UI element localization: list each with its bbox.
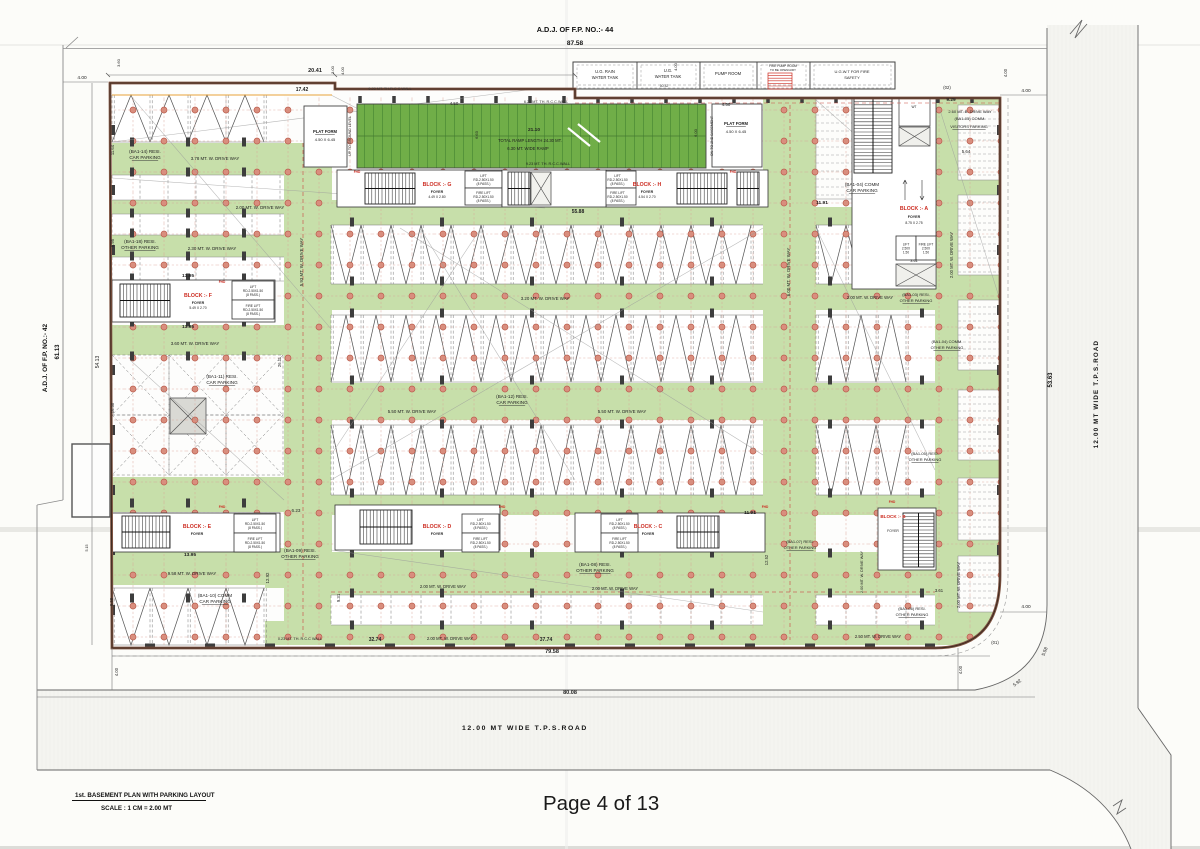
svg-text:(02): (02) xyxy=(943,85,951,90)
svg-text:(8 PASS.): (8 PASS.) xyxy=(246,293,260,297)
svg-text:FHD: FHD xyxy=(219,505,226,509)
svg-text:13.95: 13.95 xyxy=(182,324,194,330)
svg-text:OTHER PARKING: OTHER PARKING xyxy=(281,554,319,559)
svg-text:80.08: 80.08 xyxy=(563,690,577,696)
svg-text:UP TO GROUND LEVEL: UP TO GROUND LEVEL xyxy=(348,116,352,156)
svg-text:FHD: FHD xyxy=(219,280,226,284)
svg-text:(8 PASS.): (8 PASS.) xyxy=(611,199,625,203)
svg-text:FOYER: FOYER xyxy=(642,532,655,536)
svg-text:61.13: 61.13 xyxy=(55,344,61,360)
svg-text:4.00: 4.00 xyxy=(958,665,963,674)
svg-text:FHD: FHD xyxy=(499,505,506,509)
svg-text:BLOCK :- F: BLOCK :- F xyxy=(184,293,212,299)
svg-text:BLOCK :- D: BLOCK :- D xyxy=(423,524,452,530)
svg-text:(BA1-07) RESI.: (BA1-07) RESI. xyxy=(786,539,814,544)
svg-text:CAR PARKING: CAR PARKING xyxy=(129,155,161,160)
svg-text:6.00 MT. W. DRIVE WAY: 6.00 MT. W. DRIVE WAY xyxy=(786,248,791,297)
svg-text:3.61: 3.61 xyxy=(910,259,917,263)
svg-text:(BA1-11) RESI.: (BA1-11) RESI. xyxy=(206,374,237,379)
svg-text:11.91: 11.91 xyxy=(744,510,756,516)
svg-text:4.00: 4.00 xyxy=(114,667,119,676)
svg-text:(BA1-04) COMM: (BA1-04) COMM xyxy=(845,182,879,187)
svg-text:FHD: FHD xyxy=(762,505,769,509)
svg-text:TOTAL RAMP LENGTH 24.30 MT.: TOTAL RAMP LENGTH 24.30 MT. xyxy=(498,138,562,143)
svg-text:2.00 MT. W. DRIVE WAY: 2.00 MT. W. DRIVE WAY xyxy=(427,636,474,641)
svg-text:20.41: 20.41 xyxy=(308,68,322,74)
svg-text:FOYER: FOYER xyxy=(908,215,921,219)
svg-text:U.G. RAIN: U.G. RAIN xyxy=(595,69,615,74)
svg-text:(8 PASS.): (8 PASS.) xyxy=(246,312,260,316)
svg-text:ON TO 2ND BASEMENT: ON TO 2ND BASEMENT xyxy=(710,115,714,156)
svg-text:53.63: 53.63 xyxy=(1048,372,1054,388)
svg-text:CAR PARKING: CAR PARKING xyxy=(846,188,878,193)
svg-text:(BA1-14) RESI.: (BA1-14) RESI. xyxy=(129,149,161,154)
svg-text:79.58: 79.58 xyxy=(545,649,559,655)
svg-text:9.23 MT. TH. R.C.C.WALL: 9.23 MT. TH. R.C.C.WALL xyxy=(526,162,570,166)
svg-text:FOYER: FOYER xyxy=(887,529,899,533)
svg-text:OTHER PARKING: OTHER PARKING xyxy=(931,345,964,350)
svg-text:21.10: 21.10 xyxy=(528,127,540,133)
svg-text:BLOCK :- C: BLOCK :- C xyxy=(634,524,663,530)
svg-text:OTHER PARKING: OTHER PARKING xyxy=(784,545,817,550)
svg-text:12.52: 12.52 xyxy=(764,554,769,565)
svg-text:9.31: 9.31 xyxy=(336,593,341,602)
svg-text:(BA1-08) RESI.: (BA1-08) RESI. xyxy=(579,562,611,567)
svg-text:OTHER PARKING: OTHER PARKING xyxy=(900,298,933,303)
svg-text:12.00 MT WIDE T.P.S.ROAD: 12.00 MT WIDE T.P.S.ROAD xyxy=(1093,340,1100,448)
svg-text:9.29: 9.29 xyxy=(946,97,956,103)
svg-text:FOYER: FOYER xyxy=(431,190,444,194)
svg-text:5.49 X 2.70: 5.49 X 2.70 xyxy=(189,306,206,310)
svg-text:OTHER PARKING: OTHER PARKING xyxy=(121,245,159,250)
svg-text:TO BE OPEN/AIRY: TO BE OPEN/AIRY xyxy=(770,68,796,72)
svg-text:50.32: 50.32 xyxy=(660,84,669,88)
svg-text:4.00: 4.00 xyxy=(340,66,345,75)
svg-text:FOYER: FOYER xyxy=(431,532,444,536)
svg-text:54.13: 54.13 xyxy=(95,356,101,369)
svg-text:4.00: 4.00 xyxy=(673,62,678,71)
svg-text:3.00: 3.00 xyxy=(330,65,335,74)
svg-text:3.78 MT. W. DRIVE WAY: 3.78 MT. W. DRIVE WAY xyxy=(191,156,240,161)
svg-text:2.00 MT. W. DRIVE WAY: 2.00 MT. W. DRIVE WAY xyxy=(592,586,639,591)
svg-text:(BA1-04) COMM.: (BA1-04) COMM. xyxy=(932,339,963,344)
svg-text:9.38: 9.38 xyxy=(109,597,114,606)
svg-text:SCALE : 1 CM = 2.00 MT: SCALE : 1 CM = 2.00 MT xyxy=(101,805,172,812)
svg-text:CAR PARKING: CAR PARKING xyxy=(199,599,231,604)
svg-text:2.00 MT. W. DRIVE WAY: 2.00 MT. W. DRIVE WAY xyxy=(949,232,954,279)
svg-text:4.00: 4.00 xyxy=(1003,68,1008,77)
svg-text:4.54 X 2.70: 4.54 X 2.70 xyxy=(638,195,655,199)
svg-text:2.00 MT. W. DRIVE WAY: 2.00 MT. W. DRIVE WAY xyxy=(956,562,961,609)
svg-text:4.50: 4.50 xyxy=(722,102,731,107)
svg-text:(8 PASS.): (8 PASS.) xyxy=(248,545,262,549)
svg-text:FHD: FHD xyxy=(730,170,737,174)
svg-text:OTHER PARKING: OTHER PARKING xyxy=(896,612,929,617)
svg-text:PLAT FORM: PLAT FORM xyxy=(724,121,749,126)
svg-text:Page 4 of 13: Page 4 of 13 xyxy=(543,792,659,815)
svg-text:FOYER: FOYER xyxy=(641,190,654,194)
svg-text:A.D.J. OF F.P. NO.:- 44: A.D.J. OF F.P. NO.:- 44 xyxy=(537,25,614,34)
svg-text:3.60 MT. W. DRIVE WAY: 3.60 MT. W. DRIVE WAY xyxy=(171,341,220,346)
svg-text:55.88: 55.88 xyxy=(572,209,585,215)
svg-text:5.64: 5.64 xyxy=(962,149,971,154)
svg-text:2.60 MT. B. DRIVE WAY: 2.60 MT. B. DRIVE WAY xyxy=(948,109,992,114)
svg-text:6.95: 6.95 xyxy=(110,238,115,247)
svg-text:11.91: 11.91 xyxy=(816,200,828,206)
svg-text:OTHER PARKING: OTHER PARKING xyxy=(576,568,614,573)
svg-text:5.93 MT. W. DRIVE WAY: 5.93 MT. W. DRIVE WAY xyxy=(299,238,304,287)
svg-text:2.50 MT. W. DRIVE WAY: 2.50 MT. W. DRIVE WAY xyxy=(855,634,902,639)
svg-text:FOYER: FOYER xyxy=(191,532,204,536)
svg-text:3.60: 3.60 xyxy=(116,58,121,67)
svg-text:PUMP ROOM: PUMP ROOM xyxy=(715,71,742,76)
svg-text:13.95: 13.95 xyxy=(184,552,196,558)
svg-text:BLOCK :- E: BLOCK :- E xyxy=(183,524,212,530)
svg-text:(01): (01) xyxy=(991,640,999,645)
svg-text:CAR PARKING: CAR PARKING xyxy=(206,380,238,385)
svg-text:6.23: 6.23 xyxy=(292,508,301,513)
svg-text:(8 PASS.): (8 PASS.) xyxy=(474,545,488,549)
svg-text:87.58: 87.58 xyxy=(567,40,584,47)
svg-text:U.G.: U.G. xyxy=(664,68,673,73)
svg-text:(BA1-10) COMM: (BA1-10) COMM xyxy=(198,593,232,598)
svg-text:WATER TANK: WATER TANK xyxy=(592,75,619,80)
svg-text:1.50: 1.50 xyxy=(903,250,909,254)
svg-text:2.00 MT. W. DRIVE WAY: 2.00 MT. W. DRIVE WAY xyxy=(860,551,864,593)
svg-text:PLAT FORM: PLAT FORM xyxy=(313,129,338,134)
svg-text:WT: WT xyxy=(912,105,917,109)
svg-text:2.00 MT. W. DRIVE WAY: 2.00 MT. W. DRIVE WAY xyxy=(236,205,285,210)
svg-text:6.00: 6.00 xyxy=(693,128,698,137)
svg-text:(8 PASS.): (8 PASS.) xyxy=(613,545,627,549)
svg-text:9.58 MT. W. DRIVE WAY: 9.58 MT. W. DRIVE WAY xyxy=(168,571,217,576)
svg-text:U.G.W.T FOR FIRE: U.G.W.T FOR FIRE xyxy=(834,69,869,74)
svg-text:4.00: 4.00 xyxy=(77,75,87,81)
svg-text:4.00: 4.00 xyxy=(1021,604,1031,610)
svg-text:11.64: 11.64 xyxy=(110,144,115,155)
svg-text:CAR PARKING: CAR PARKING xyxy=(496,400,528,405)
svg-text:(BA1-05) RESI.: (BA1-05) RESI. xyxy=(911,451,939,456)
svg-text:0.23 MT. TH. R.C.C WALL: 0.23 MT. TH. R.C.C WALL xyxy=(278,637,322,641)
svg-text:(8 PASS.): (8 PASS.) xyxy=(248,526,262,530)
svg-text:(8 PASS.): (8 PASS.) xyxy=(477,199,491,203)
svg-text:6.23 MT. TH. R.C.C.WALL: 6.23 MT. TH. R.C.C.WALL xyxy=(524,100,568,104)
svg-text:16.50: 16.50 xyxy=(110,402,115,413)
svg-text:(BA1-12) RESI.: (BA1-12) RESI. xyxy=(496,394,528,399)
svg-text:3.61: 3.61 xyxy=(935,588,944,593)
svg-text:(8 PASS.): (8 PASS.) xyxy=(474,526,488,530)
svg-text:8.75 X 2.75: 8.75 X 2.75 xyxy=(905,221,922,225)
svg-text:BLOCK :- A: BLOCK :- A xyxy=(900,206,929,212)
svg-text:(8 PASS.): (8 PASS.) xyxy=(477,182,491,186)
svg-text:2.00 MT. W. DRIVE WAY: 2.00 MT. W. DRIVE WAY xyxy=(420,584,467,589)
svg-text:VISITORS PARKING: VISITORS PARKING xyxy=(950,124,987,129)
svg-text:4.50 X 6.45: 4.50 X 6.45 xyxy=(726,129,747,134)
svg-text:5.50 MT. W. DRIVE WAY: 5.50 MT. W. DRIVE WAY xyxy=(388,409,437,414)
svg-text:0.23 MT. TH.R.C.C.WALL: 0.23 MT. TH.R.C.C.WALL xyxy=(368,87,411,91)
svg-text:(8 PASS.): (8 PASS.) xyxy=(611,182,625,186)
svg-text:SAFETY: SAFETY xyxy=(844,75,860,80)
svg-text:6.63: 6.63 xyxy=(474,130,479,139)
svg-text:(8 PASS.): (8 PASS.) xyxy=(613,526,627,530)
svg-text:4.50 X 6.45: 4.50 X 6.45 xyxy=(315,137,336,142)
svg-text:A.D.J. OF F.P. NO.:- 42: A.D.J. OF F.P. NO.:- 42 xyxy=(42,324,49,393)
svg-text:26.11: 26.11 xyxy=(277,356,282,367)
svg-text:OTHER PARKING: OTHER PARKING xyxy=(909,457,942,462)
svg-text:(BA1-05) COMM.: (BA1-05) COMM. xyxy=(955,116,986,121)
svg-text:12.92: 12.92 xyxy=(265,572,270,584)
svg-text:1st. BASEMENT PLAN WITH PARKIN: 1st. BASEMENT PLAN WITH PARKING LAYOUT xyxy=(75,792,215,799)
svg-text:FOYER: FOYER xyxy=(192,301,205,305)
svg-text:5.15: 5.15 xyxy=(85,545,89,552)
svg-text:BLOCK :- G: BLOCK :- G xyxy=(423,182,452,188)
svg-text:12.00 MT WIDE T.P.S.ROAD: 12.00 MT WIDE T.P.S.ROAD xyxy=(462,725,588,732)
svg-text:37.74: 37.74 xyxy=(540,637,553,643)
svg-text:6.30 MT. WIDE RAMP: 6.30 MT. WIDE RAMP xyxy=(507,146,549,151)
svg-text:32.74: 32.74 xyxy=(369,637,382,643)
svg-text:(BA1-03) RESI.: (BA1-03) RESI. xyxy=(902,292,930,297)
svg-text:2.30 MT. W. DRIVE WAY: 2.30 MT. W. DRIVE WAY xyxy=(188,246,237,251)
svg-text:17.42: 17.42 xyxy=(296,87,309,93)
svg-text:(BA1-18) RESI.: (BA1-18) RESI. xyxy=(124,239,156,244)
svg-text:3.20 MT. W. DRIVE WAY: 3.20 MT. W. DRIVE WAY xyxy=(521,296,570,301)
svg-text:2.00 MT. W. DRIVE WAY: 2.00 MT. W. DRIVE WAY xyxy=(847,295,894,300)
svg-text:5.50 MT. W. DRIVE WAY: 5.50 MT. W. DRIVE WAY xyxy=(598,409,647,414)
svg-text:BLOCK :- H: BLOCK :- H xyxy=(633,182,662,188)
svg-text:BLOCK :- B: BLOCK :- B xyxy=(880,514,906,519)
svg-text:4.49 X 2.80: 4.49 X 2.80 xyxy=(428,195,445,199)
svg-text:WATER TANK: WATER TANK xyxy=(655,74,682,79)
svg-text:1.50: 1.50 xyxy=(923,250,929,254)
svg-text:4.50: 4.50 xyxy=(450,101,459,106)
svg-text:13.95: 13.95 xyxy=(182,273,194,279)
svg-text:FHD: FHD xyxy=(889,500,896,504)
svg-text:FHD: FHD xyxy=(354,170,361,174)
svg-text:4.00: 4.00 xyxy=(1021,88,1031,94)
svg-text:(BA1-06) RESI.: (BA1-06) RESI. xyxy=(898,606,926,611)
svg-text:(BA1-09) RESI.: (BA1-09) RESI. xyxy=(284,548,316,553)
